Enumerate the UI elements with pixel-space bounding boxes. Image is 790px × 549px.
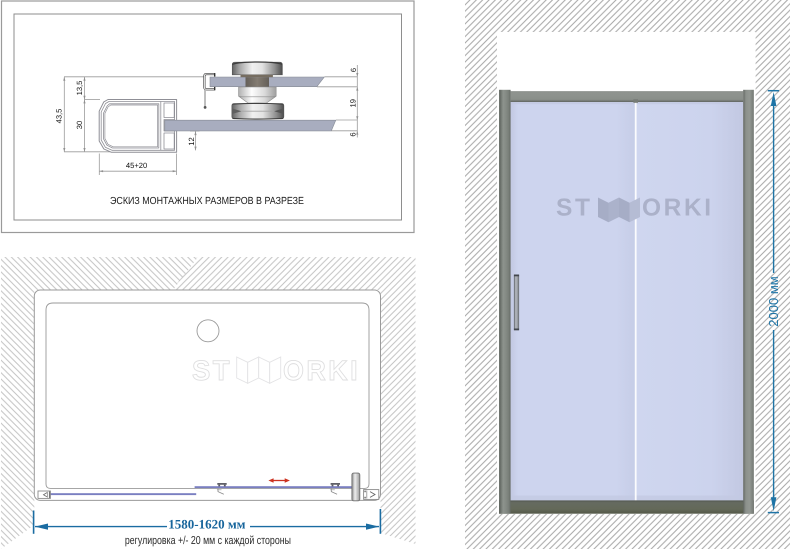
svg-text:12: 12 [187, 137, 196, 145]
svg-text:ST: ST [556, 195, 593, 222]
svg-text:6: 6 [349, 68, 358, 72]
svg-text:19: 19 [348, 99, 357, 107]
svg-text:1580-1620 мм: 1580-1620 мм [168, 516, 245, 531]
svg-text:2000 мм: 2000 мм [766, 276, 781, 326]
svg-text:ORKI: ORKI [642, 195, 714, 222]
svg-text:ЭСКИЗ МОНТАЖНЫХ РАЗМЕРОВ В РАЗ: ЭСКИЗ МОНТАЖНЫХ РАЗМЕРОВ В РАЗРЕЗЕ [110, 196, 304, 207]
svg-text:регулировка +/- 20 мм с каждой: регулировка +/- 20 мм с каждой стороны [125, 535, 291, 547]
svg-text:43,5: 43,5 [55, 109, 64, 124]
svg-text:30: 30 [75, 121, 84, 129]
svg-text:6: 6 [348, 132, 357, 136]
svg-text:ORKI: ORKI [283, 355, 360, 386]
svg-text:45+20: 45+20 [126, 161, 147, 170]
svg-text:ST: ST [192, 355, 232, 386]
svg-text:13,5: 13,5 [75, 81, 84, 96]
